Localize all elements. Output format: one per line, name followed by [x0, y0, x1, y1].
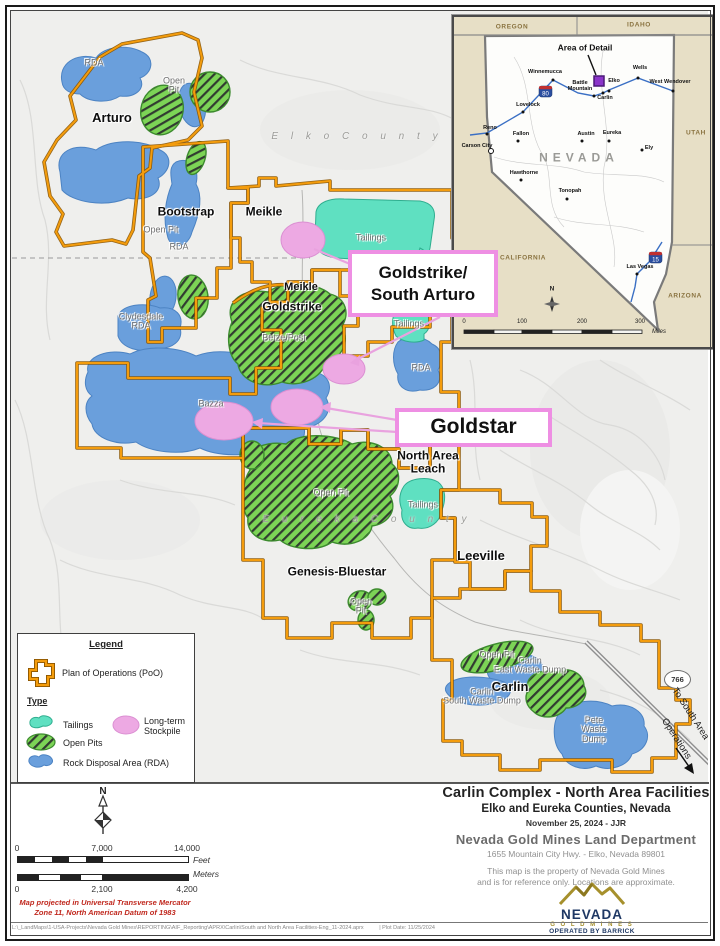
meters-tick-2100: 2,100	[91, 884, 112, 894]
feet-tick-7000: 7,000	[91, 843, 112, 853]
ngm-logo-mountains-icon	[540, 882, 644, 906]
feet-tick-14000: 14,000	[174, 843, 200, 853]
meters-tick-0: 0	[15, 884, 20, 894]
map-label: RDA	[169, 242, 188, 251]
inset-city-label: Ely	[645, 146, 653, 152]
inset-city-label: Wells	[633, 66, 647, 72]
map-label: Arturo	[92, 111, 132, 125]
inset-city-dot	[517, 140, 520, 143]
inset-city-label: Eureka	[603, 131, 621, 137]
area-of-detail-label: Area of Detail	[558, 44, 613, 53]
inset-city-dot	[637, 77, 640, 80]
meters-unit: Meters	[193, 869, 219, 879]
inset-scale-tick-300: 300	[635, 319, 645, 325]
inset-city-dot	[608, 90, 611, 93]
map-subtitle: Elko and Eureka Counties, Nevada	[438, 803, 714, 815]
inset-compass	[544, 296, 560, 312]
map-label: Open Pit	[313, 488, 348, 497]
plot-date: | Plot Date: 11/25/2024	[379, 925, 435, 931]
inset-city-label: Tonopah	[559, 189, 582, 195]
i80-shield: 80	[539, 86, 552, 98]
inset-scale-tick-100: 100	[517, 319, 527, 325]
meters-tick-4200: 4,200	[176, 884, 197, 894]
stockpile-symbol-icon	[113, 716, 139, 734]
inset-scale-tick-200: 200	[577, 319, 587, 325]
ngm-logo-name: NEVADA	[540, 907, 644, 922]
open-pit-symbol-icon	[27, 734, 55, 750]
map-document: { "colors":{"poo_orange":"#f49c0c","rda_…	[0, 0, 720, 946]
inset-city-label: Las Vegas	[627, 265, 654, 271]
highway-766-number: 766	[671, 675, 684, 684]
inset-city-label: Winnemucca	[528, 70, 562, 76]
legend-rda-label: Rock Disposal Area (RDA)	[63, 758, 169, 768]
inset-north-label: N	[550, 287, 555, 294]
projection-note: Map projected in Universal Transverse Me…	[15, 898, 195, 918]
map-label: Bazza	[198, 399, 223, 408]
legend-openpits-label: Open Pits	[63, 738, 103, 748]
inset-state-label: UTAH	[686, 131, 706, 138]
area-of-detail-marker	[594, 76, 604, 86]
map-label: Pete Waste Dump	[581, 716, 606, 744]
inset-scale-unit: Miles	[652, 329, 666, 335]
map-label: Genesis-Bluestar	[288, 566, 387, 579]
map-label: RDA	[411, 363, 430, 372]
map-label: Goldstrike	[262, 301, 321, 314]
map-label: Carlin East Waste Dump	[494, 657, 566, 676]
map-label: Open Pit	[163, 77, 185, 96]
callout-goldstrike-south-arturo: Goldstrike/ South Arturo	[348, 250, 498, 317]
inset-scale-tick-0: 0	[462, 319, 465, 325]
inset-city-label: Carson City	[462, 144, 493, 150]
tailings-symbol-icon	[30, 716, 52, 728]
map-label: Clydesdale RDA	[119, 313, 164, 332]
map-label: Carlin South Waste Dump	[443, 688, 521, 707]
feet-scalebar	[17, 856, 189, 863]
legend-tailings-label: Tailings	[63, 720, 93, 730]
inset-city-label: Hawthorne	[510, 171, 538, 177]
inset-city-label: Elko	[608, 79, 620, 85]
map-label: E u r e k a C o u n t y	[263, 515, 472, 526]
inset-city-label: West Wendover	[649, 80, 690, 86]
map-label: Leeville	[457, 549, 505, 563]
inset-city-label: Austin	[577, 132, 594, 138]
inset-city-label: Carlin	[597, 96, 613, 102]
callout-goldstar: Goldstar	[395, 408, 552, 447]
map-date: November 25, 2024 - JJR	[438, 818, 714, 828]
legend-type-label: Type	[27, 696, 47, 706]
inset-state-label: ARIZONA	[668, 294, 702, 301]
feet-unit: Feet	[193, 855, 210, 865]
inset-city-label: Battle Mountain	[568, 81, 592, 93]
file-path: L:\_LandMaps\1-USA-Projects\Nevada Gold …	[12, 925, 364, 931]
legend: Legend Plan of Operations (PoO) Type Tai…	[17, 633, 195, 783]
map-label: RDA	[84, 58, 103, 67]
map-label: E l k o C o u n t y	[271, 132, 442, 143]
title-block: Carlin Complex - North Area Facilities E…	[438, 785, 714, 888]
department-name: Nevada Gold Mines Land Department	[438, 832, 714, 847]
feet-tick-0: 0	[15, 843, 20, 853]
map-label: Bootstrap	[158, 206, 215, 219]
map-label: Open Pit	[143, 225, 178, 234]
svg-text:80: 80	[542, 92, 549, 98]
rda-symbol-icon	[29, 755, 53, 767]
inset-state-label: CALIFORNIA	[500, 256, 546, 263]
map-label: Open Pit	[350, 598, 372, 617]
inset-city-dot	[672, 90, 675, 93]
inset-city-dot	[552, 79, 555, 82]
north-compass-n: N	[99, 786, 106, 797]
inset-city-dot	[520, 179, 523, 182]
inset-city-dot	[602, 92, 605, 95]
map-label: Tailings	[356, 233, 386, 242]
footer-strip: L:\_LandMaps\1-USA-Projects\Nevada Gold …	[12, 925, 702, 931]
map-title: Carlin Complex - North Area Facilities	[438, 785, 714, 801]
inset-state-label: OREGON	[496, 25, 529, 32]
inset-city-dot	[593, 95, 596, 98]
svg-text:15: 15	[652, 258, 659, 264]
inset-city-label: Reno	[483, 126, 497, 132]
inset-city-dot	[641, 149, 644, 152]
map-label: Meikle	[284, 282, 318, 294]
inset-city-label: Fallon	[513, 132, 529, 138]
inset-city-dot	[608, 140, 611, 143]
inset-city-dot	[522, 111, 525, 114]
north-compass: N	[88, 788, 118, 845]
inset-scalebar	[464, 330, 642, 334]
meters-scalebar	[17, 874, 189, 881]
inset-city-dot	[636, 273, 639, 276]
map-label: Meikle	[246, 206, 283, 219]
inset-state-label: IDAHO	[627, 23, 651, 30]
map-label: North Area Leach	[397, 449, 459, 474]
inset-city-dot	[486, 133, 489, 136]
legend-poo-label: Plan of Operations (PoO)	[62, 668, 163, 678]
legend-stockpile-label: Long-term Stockpile	[144, 716, 185, 737]
map-label: Tailings	[408, 500, 438, 509]
inset-city-dot	[581, 140, 584, 143]
inset-city-dot	[566, 198, 569, 201]
nevada-state-label: NEVADA	[539, 152, 619, 165]
map-label: Tailings	[394, 319, 424, 328]
footer-divider	[11, 922, 708, 923]
inset-city-label: Lovelock	[516, 103, 540, 109]
department-address: 1655 Mountain City Hwy. - Elko, Nevada 8…	[438, 849, 714, 859]
i15-shield: 15	[649, 252, 662, 264]
map-label: Betze/Post	[262, 333, 306, 342]
